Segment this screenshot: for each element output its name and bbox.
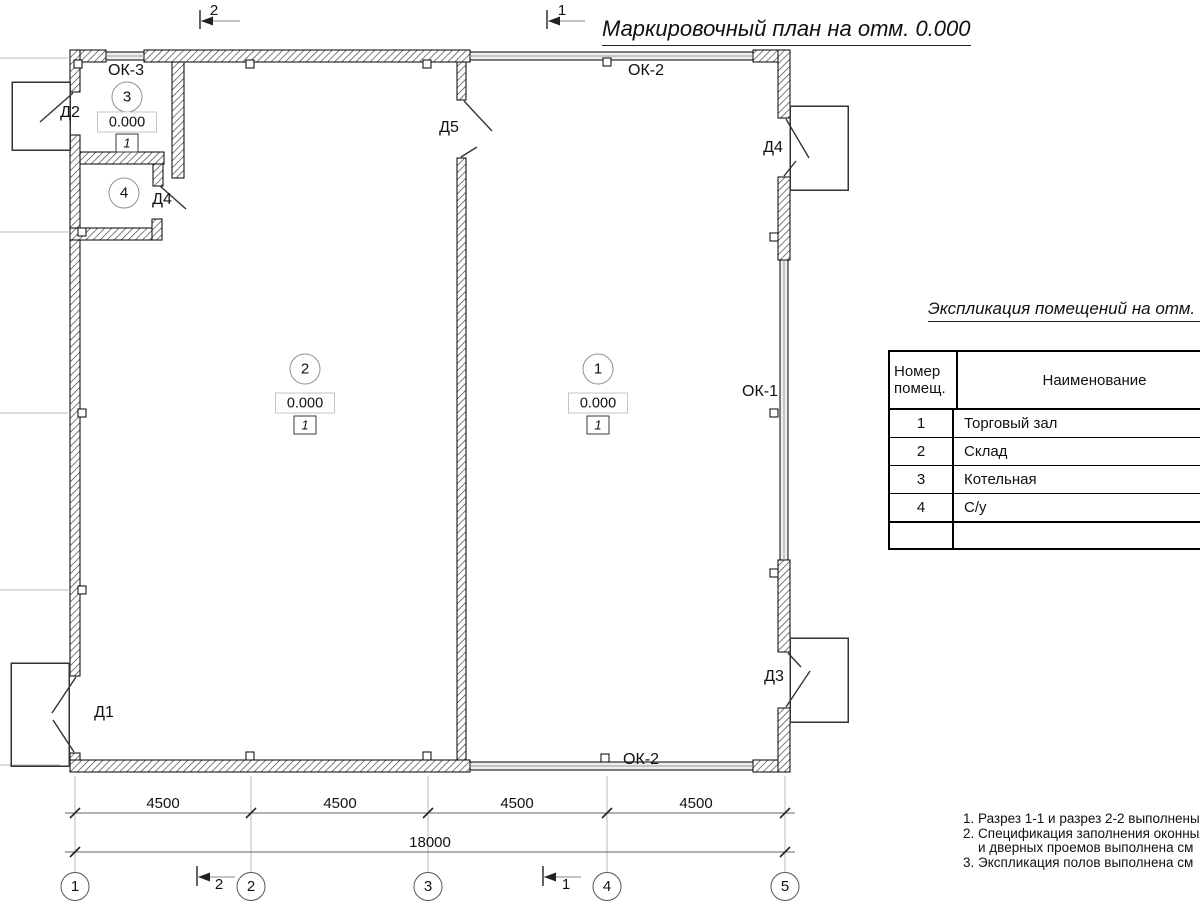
legend-row-name: Торговый зал [954, 410, 1200, 437]
door-d2-label: Д2 [60, 104, 80, 122]
room-2-floor-type: 1 [294, 416, 317, 435]
dim-span-2: 4500 [323, 795, 356, 812]
drawing-sheet: { "title": "Маркировочный план на отм. 0… [0, 0, 1200, 900]
window-ok2-top-label: ОК-2 [628, 62, 664, 80]
legend-row-num: 2 [890, 438, 954, 465]
door-d4wc-label: Д4 [152, 191, 172, 209]
room-3-number: 3 [112, 82, 143, 113]
dim-span-1: 4500 [146, 795, 179, 812]
window-ok2-bottom-strip [470, 762, 753, 770]
window-ok1-strip [780, 260, 788, 560]
axis-bubble-2: 2 [237, 872, 266, 901]
room-3-elevation: 0.000 [97, 112, 157, 133]
section-2-bottom-label: 2 [215, 876, 223, 893]
legend-col2-header: Наименование [958, 352, 1200, 408]
door-d5-label: Д5 [439, 119, 459, 137]
room-1-number: 1 [583, 354, 614, 385]
legend-row-num: 1 [890, 410, 954, 437]
axis-bubble-3: 3 [414, 872, 443, 901]
window-ok3-label: ОК-3 [108, 62, 144, 80]
legend-row-name: С/у [954, 494, 1200, 521]
legend-row-3: 3 Котельная [890, 466, 1200, 494]
section-1-bottom-label: 1 [562, 876, 570, 893]
axis-bubble-4: 4 [593, 872, 622, 901]
drawing-title: Маркировочный план на отм. 0.000 [602, 16, 971, 46]
door-d1-leaf-b [53, 720, 74, 752]
windows [106, 52, 788, 770]
note-line: 1. Разрез 1-1 и разрез 2-2 выполнены [963, 812, 1200, 827]
porch-d1 [11, 663, 69, 766]
legend-row-num: 3 [890, 466, 954, 493]
room-legend-table: Номер помещ. Наименование 1 Торговый зал… [888, 350, 1200, 550]
column-axis-extension-lines [75, 776, 785, 872]
legend-row-name: Котельная [954, 466, 1200, 493]
note-line: 2. Спецификация заполнения оконных [963, 827, 1200, 842]
section-2-top-arrow [200, 10, 240, 29]
dim-span-4: 4500 [679, 795, 712, 812]
porch-d3 [790, 638, 848, 722]
room-1-floor-type: 1 [587, 416, 610, 435]
legend-row-name: Склад [954, 438, 1200, 465]
legend-row-2: 2 Склад [890, 438, 1200, 466]
legend-row-1: 1 Торговый зал [890, 410, 1200, 438]
legend-table-title: Экспликация помещений на отм. 0.000 [928, 299, 1200, 322]
note-line: и дверных проемов выполнена см [963, 841, 1200, 856]
room-3-floor-type: 1 [116, 134, 139, 153]
drawing-notes: 1. Разрез 1-1 и разрез 2-2 выполнены 2. … [963, 812, 1200, 870]
room-2-elevation: 0.000 [275, 393, 335, 414]
dim-span-3: 4500 [500, 795, 533, 812]
legend-row-num: 4 [890, 494, 954, 521]
door-d5-leaf-a [464, 101, 492, 131]
door-d1-label: Д1 [94, 704, 114, 722]
axis-bubble-1: 1 [61, 872, 90, 901]
legend-header-row: Номер помещ. Наименование [890, 352, 1200, 410]
dim-total: 18000 [409, 834, 451, 851]
room-1-elevation: 0.000 [568, 393, 628, 414]
room-2-number: 2 [290, 354, 321, 385]
row-axis-extension-lines [0, 58, 68, 765]
door-d3-label: Д3 [764, 668, 784, 686]
note-line: 3. Экспликация полов выполнена см [963, 856, 1200, 871]
window-ok1-label: ОК-1 [742, 383, 778, 401]
legend-col1-header: Номер помещ. [890, 352, 958, 408]
window-ok2-bottom-label: ОК-2 [623, 751, 659, 769]
section-1-top-label: 1 [558, 2, 566, 19]
door-d1-leaf-a [52, 677, 76, 713]
porch-d4 [790, 106, 848, 190]
window-ok3-strip [106, 52, 144, 60]
door-d4-label: Д4 [763, 139, 783, 157]
axis-bubble-5: 5 [771, 872, 800, 901]
room-4-number: 4 [109, 178, 140, 209]
section-arrows [197, 10, 585, 886]
section-2-top-label: 2 [210, 2, 218, 19]
door-d5-leaf-b [461, 147, 477, 157]
interior-walls [70, 62, 466, 760]
legend-empty-row [890, 523, 1200, 548]
legend-row-4: 4 С/у [890, 494, 1200, 523]
